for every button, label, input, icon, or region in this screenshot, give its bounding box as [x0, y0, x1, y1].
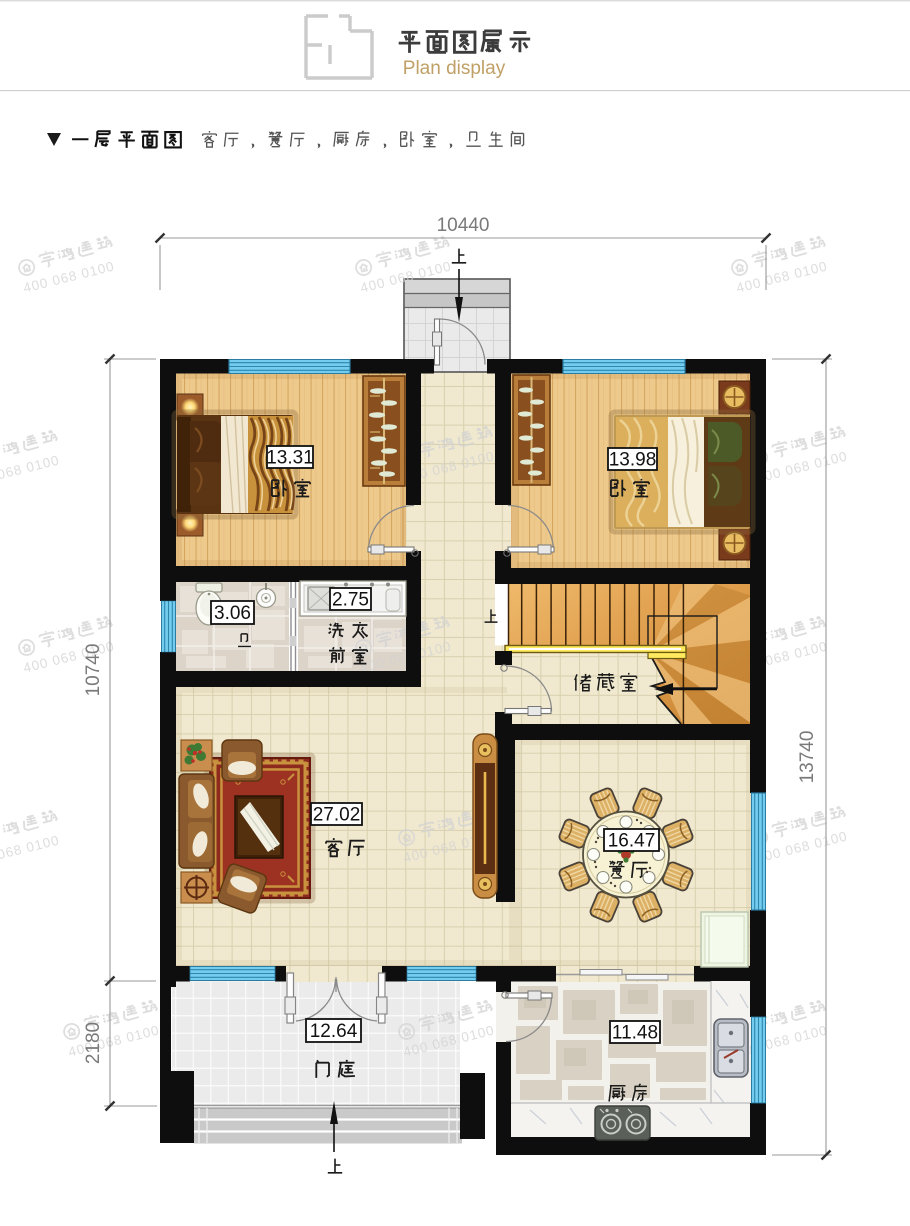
svg-text:12.64: 12.64: [310, 1021, 358, 1042]
svg-text:16.47: 16.47: [608, 831, 656, 852]
svg-text:13740: 13740: [797, 731, 818, 784]
svg-text:11.48: 11.48: [612, 1023, 658, 1044]
svg-text:3.06: 3.06: [214, 603, 251, 624]
svg-text:13.31: 13.31: [266, 448, 314, 469]
svg-text:2.75: 2.75: [332, 590, 369, 611]
svg-text:10440: 10440: [437, 215, 490, 236]
svg-text:13.98: 13.98: [609, 450, 657, 471]
svg-text:10740: 10740: [83, 644, 104, 697]
svg-text:27.02: 27.02: [313, 805, 361, 826]
svg-text:Plan display: Plan display: [403, 58, 506, 79]
svg-text:2180: 2180: [83, 1022, 104, 1064]
